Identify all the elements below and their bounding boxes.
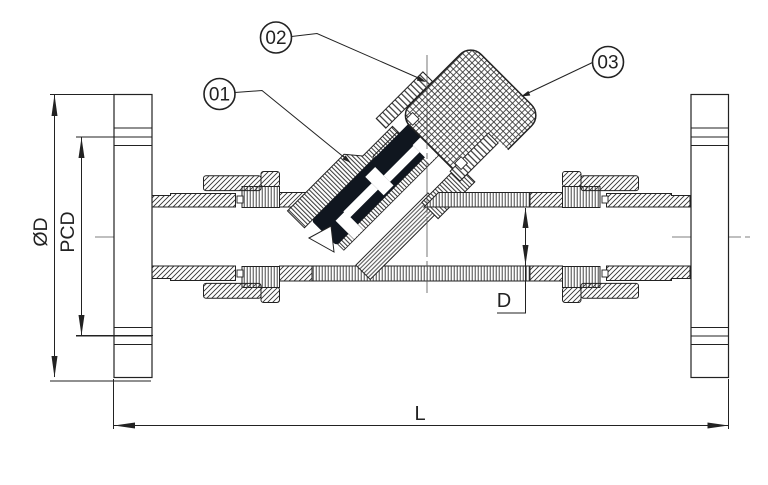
svg-text:PCD: PCD [57,211,79,252]
svg-text:L: L [414,403,425,425]
svg-text:ØD: ØD [30,217,52,246]
svg-text:03: 03 [597,53,618,74]
svg-text:01: 01 [209,85,230,106]
svg-text:D: D [497,290,511,312]
svg-text:02: 02 [265,28,286,49]
